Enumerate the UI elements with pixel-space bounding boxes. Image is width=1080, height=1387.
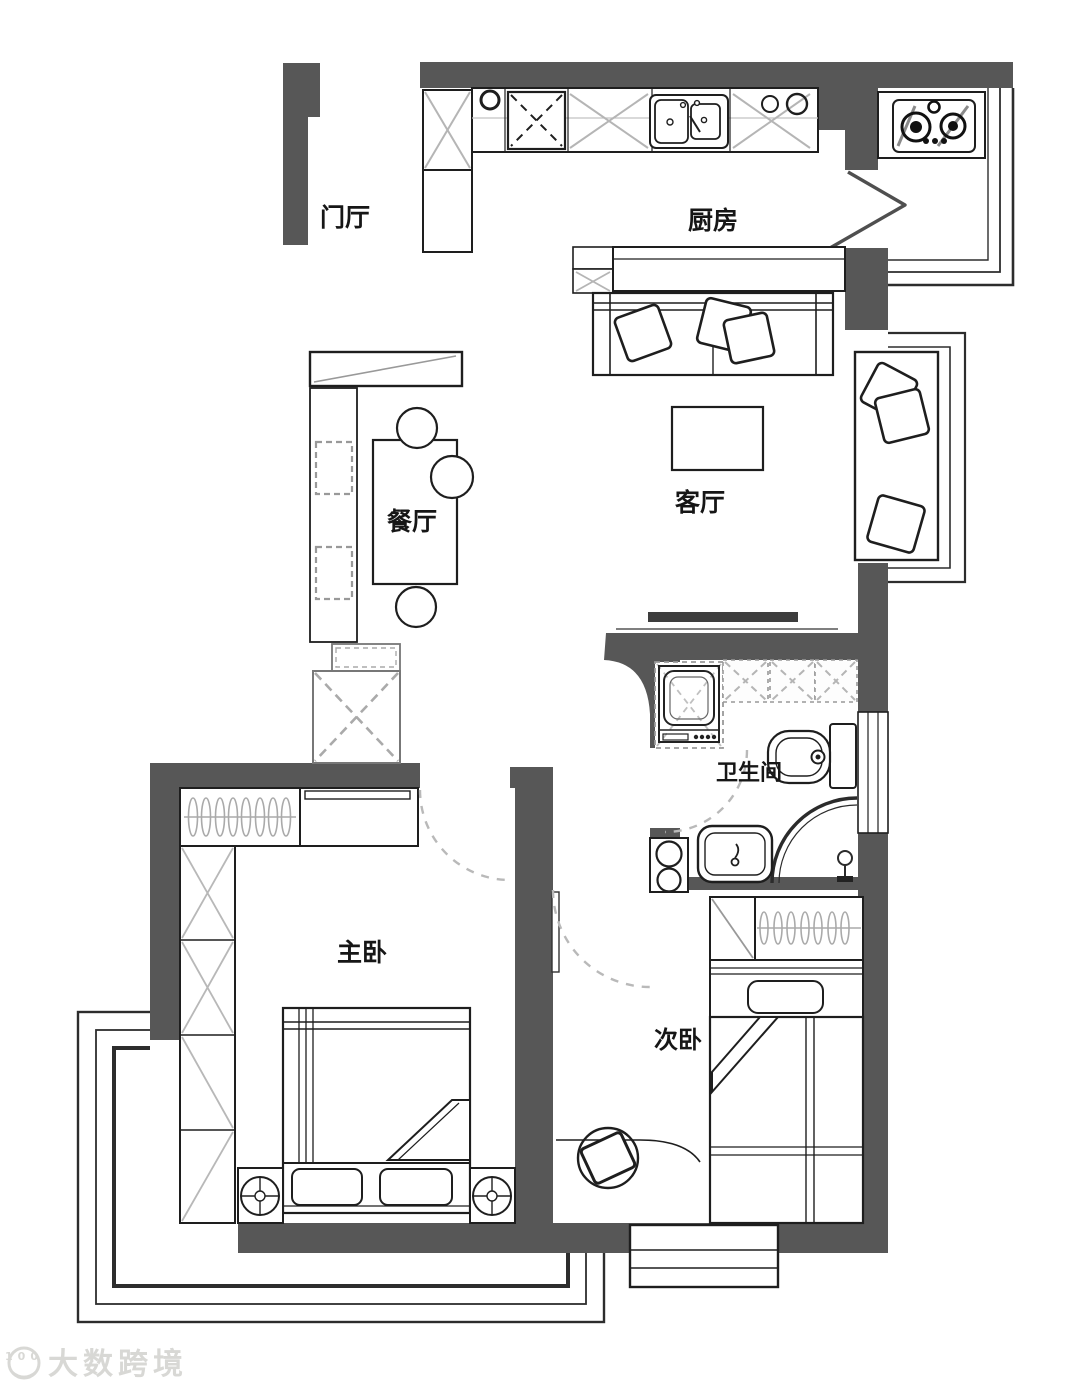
kitchen-counter	[472, 88, 818, 152]
room-label-master: 主卧	[337, 938, 387, 967]
bathroom-stool-box	[650, 838, 688, 892]
second-bedroom-pillow	[748, 981, 823, 1013]
room-label-dining: 餐厅	[387, 507, 437, 536]
second-bedroom-bed	[710, 960, 863, 1223]
bathroom-cabinets	[723, 660, 857, 702]
fridge-space	[313, 671, 400, 763]
hall-cabinet	[332, 644, 400, 671]
master-pillow-left	[292, 1169, 362, 1205]
coffee-table	[672, 407, 763, 470]
master-left-wall	[150, 763, 180, 1040]
right-wall-upper	[845, 248, 888, 330]
master-top-wall	[150, 763, 420, 788]
master-bottom-wall	[238, 1223, 553, 1253]
master-bed	[283, 1008, 470, 1213]
floor-plan-drawing: 门厅 厨房 餐厅 客厅 卫生间 主卧 次卧 100 大数跨境	[0, 0, 1080, 1387]
washing-machine	[655, 662, 723, 748]
kitchen-partition	[573, 247, 845, 293]
door-leaf	[552, 892, 559, 972]
top-wall	[420, 62, 1013, 88]
nightstand-right	[470, 1168, 515, 1223]
gas-stove	[878, 92, 985, 158]
entry-cabinet	[423, 90, 472, 252]
right-wall-mid	[858, 563, 888, 637]
dining-console	[310, 352, 462, 386]
watermark: 100 大数跨境	[5, 1347, 188, 1382]
floor-plan-page: 门厅 厨房 餐厅 客厅 卫生间 主卧 次卧 100 大数跨境	[0, 0, 1080, 1387]
kitchen-sink	[650, 95, 728, 148]
room-label-second: 次卧	[654, 1026, 702, 1054]
bathroom-right-wall-b	[858, 833, 888, 883]
room-label-entry: 门厅	[320, 203, 370, 232]
watermark-logo-text: 100	[5, 1350, 43, 1363]
room-label-bathroom: 卫生间	[716, 761, 782, 786]
dining-bench	[310, 388, 357, 642]
master-pillow-right	[380, 1169, 452, 1205]
bedroom-divider-wall	[515, 767, 553, 1223]
bathroom-window	[858, 712, 888, 833]
second-bedroom-wardrobe	[710, 897, 863, 960]
sofa	[593, 293, 833, 375]
master-closet	[180, 846, 235, 1223]
kitchen-appliance	[508, 92, 565, 149]
master-wardrobe	[180, 788, 418, 846]
bay-window-seat	[855, 352, 938, 560]
room-label-kitchen: 厨房	[688, 206, 738, 235]
washbasin	[698, 826, 772, 882]
second-bedroom-window	[630, 1225, 778, 1287]
bathroom-right-wall-a	[858, 660, 888, 712]
watermark-text: 大数跨境	[48, 1347, 188, 1382]
room-label-living: 客厅	[675, 488, 725, 517]
nightstand-left	[238, 1168, 283, 1223]
